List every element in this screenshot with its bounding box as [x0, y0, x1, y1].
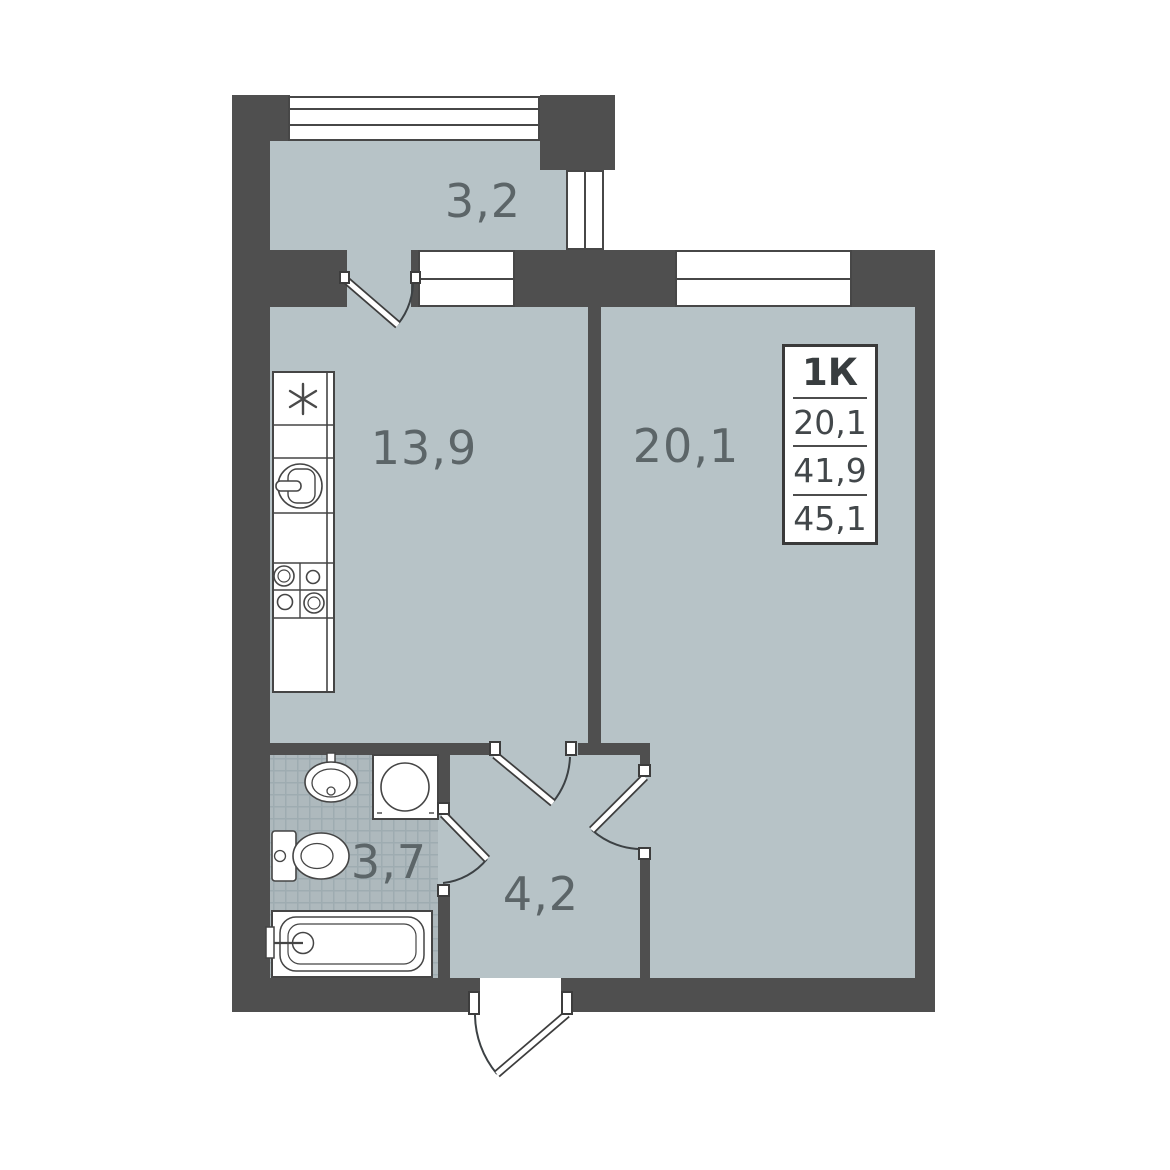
entrance-door-opening	[480, 978, 561, 1012]
apartment-type-label: 1К	[785, 347, 875, 397]
living-door-jamb-top	[638, 764, 651, 777]
balcony-area-label: 3,2	[445, 174, 521, 228]
kitchen-area-label: 13,9	[371, 421, 477, 475]
total-area-value: 45,1	[793, 494, 867, 542]
hallway-area-label: 4,2	[503, 867, 579, 921]
kitchen-counter	[272, 371, 335, 693]
living-door-jamb-bottom	[638, 847, 651, 860]
apartment-info-box: 1К 20,1 41,9 45,1	[782, 344, 878, 545]
window-sill-line	[676, 278, 851, 280]
balcony-door-opening	[347, 250, 411, 307]
living-room-area-label: 20,1	[633, 419, 739, 473]
entrance-door-jamb-right	[561, 991, 573, 1015]
living-area-value: 20,1	[793, 397, 867, 445]
balcony-corner-right	[540, 95, 615, 170]
hallway-top-wall-right	[578, 743, 650, 755]
left-outer-wall	[232, 95, 270, 1012]
balcony-door-jamb-left	[339, 271, 350, 284]
kitchen-living-partition	[588, 307, 601, 755]
kitchen-door-jamb-right	[565, 741, 577, 756]
bottom-outer-wall	[232, 978, 935, 1012]
balcony-door-jamb-right	[410, 271, 421, 284]
entrance-door	[475, 1014, 567, 1074]
window-mullion	[584, 171, 586, 249]
balcony-corner-left	[232, 95, 290, 141]
bathroom-door-jamb-bottom	[437, 884, 450, 897]
kitchen-door-jamb-left	[489, 741, 501, 756]
bathroom-door-opening	[438, 815, 450, 884]
living-door-opening	[640, 777, 650, 847]
entrance-door-jamb-left	[468, 991, 480, 1015]
bathtub	[271, 910, 433, 978]
bathroom-area-label: 3,7	[351, 835, 427, 889]
window-sill-line	[419, 278, 514, 280]
balcony-floor	[268, 140, 567, 250]
balcony-side-window	[566, 170, 604, 250]
bathroom-door-jamb-top	[437, 802, 450, 815]
floor-plan: 3,2 13,9 20,1 3,7 4,2 1К 20,1 41,9 45,1	[0, 0, 1170, 1170]
right-outer-wall	[915, 250, 935, 1012]
living-room-window	[675, 250, 852, 307]
kitchen-window	[418, 250, 515, 307]
window-mullion	[289, 108, 539, 110]
kitchen-door-opening	[500, 743, 566, 755]
window-mullion	[289, 124, 539, 126]
washing-machine	[372, 754, 439, 820]
balcony-window-band	[288, 96, 540, 141]
area-value: 41,9	[793, 445, 867, 493]
